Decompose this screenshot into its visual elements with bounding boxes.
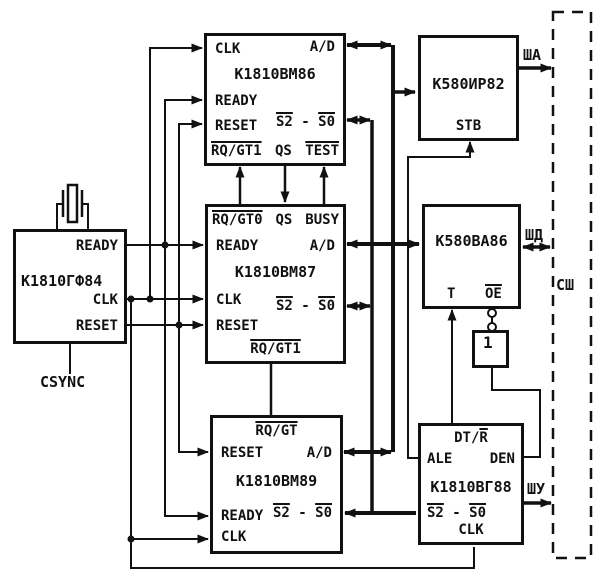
pin-ale: ALE (427, 450, 452, 468)
pin-rq-gt: RQ/GT (213, 422, 340, 440)
block-title: К1810ВГ88 (421, 478, 521, 496)
system-block-diagram: CLK A/D К1810ВМ86 READY RESET S2 - S0 RQ… (0, 0, 615, 581)
pin-status-lines: S2 - S0 (276, 113, 335, 131)
pin-qs: QS (276, 211, 293, 229)
pin-ad: A/D (307, 444, 332, 462)
csync-label: CSYNC (40, 374, 85, 391)
block-title: К580ВА86 (425, 232, 518, 250)
pin-ad: A/D (310, 237, 335, 255)
pin-status-lines: S2 - S0 (427, 504, 486, 522)
pin-qs: QS (275, 142, 292, 160)
pin-stb: STB (421, 117, 516, 135)
block-k580va86: К580ВА86 T OE (422, 204, 521, 309)
pin-clk: CLK (216, 291, 241, 309)
status-bus (345, 120, 416, 513)
block-k1810vg88: DT/R ALE DEN К1810ВГ88 S2 - S0 CLK (418, 423, 524, 545)
crystal-symbol (57, 185, 88, 229)
system-bus-label: СШ (556, 277, 574, 294)
pin-ready: READY (216, 237, 258, 255)
block-title: К580ИР82 (421, 75, 516, 93)
pin-oe: OE (485, 285, 502, 303)
pin-ready: READY (76, 237, 118, 255)
pin-status-lines: S2 - S0 (276, 297, 335, 315)
pin-clk: CLK (93, 291, 118, 309)
pin-status-lines: S2 - S0 (273, 504, 332, 522)
pin-reset: RESET (76, 317, 118, 335)
block-inverter: 1 (472, 330, 509, 368)
pin-reset: RESET (215, 117, 257, 135)
pin-clk: CLK (421, 521, 521, 539)
pin-ad: A/D (310, 38, 335, 56)
pin-reset: RESET (216, 317, 258, 335)
pin-rq-gt1: RQ/GT1 (208, 340, 343, 358)
pin-ready: READY (221, 507, 263, 525)
block-title: К1810ВМ89 (213, 472, 340, 490)
block-k580ir82: К580ИР82 STB (418, 35, 519, 141)
pin-den: DEN (490, 450, 515, 468)
pin-reset: RESET (221, 444, 263, 462)
pin-clk: CLK (221, 528, 246, 546)
block-title: К1810ГФ84 (21, 272, 102, 290)
block-k1810vm87: RQ/GT0 QS BUSY READY A/D К1810ВМ87 CLK S… (205, 204, 346, 364)
address-data-bus (344, 45, 419, 452)
block-k1810vm89: RQ/GT RESET A/D К1810ВМ89 READY S2 - S0 … (210, 415, 343, 554)
pin-test: TEST (305, 142, 339, 160)
control-bus-label: ШУ (527, 481, 545, 498)
block-title: К1810ВМ87 (208, 263, 343, 281)
pin-clk: CLK (215, 40, 240, 58)
pin-t: T (447, 285, 455, 303)
pin-busy: BUSY (305, 211, 339, 229)
inverter-label: 1 (483, 334, 493, 352)
block-k1810gf84: READY К1810ГФ84 CLK RESET (13, 229, 127, 344)
block-k1810vm86: CLK A/D К1810ВМ86 READY RESET S2 - S0 RQ… (204, 33, 346, 166)
pin-dt-r: DT/R (421, 429, 521, 447)
pin-rq-gt0: RQ/GT0 (212, 211, 263, 229)
address-bus-label: ША (523, 47, 541, 64)
pin-ready: READY (215, 92, 257, 110)
pin-rq-gt1: RQ/GT1 (211, 142, 262, 160)
block-title: К1810ВМ86 (207, 65, 343, 83)
data-bus-label: ШД (525, 227, 543, 244)
